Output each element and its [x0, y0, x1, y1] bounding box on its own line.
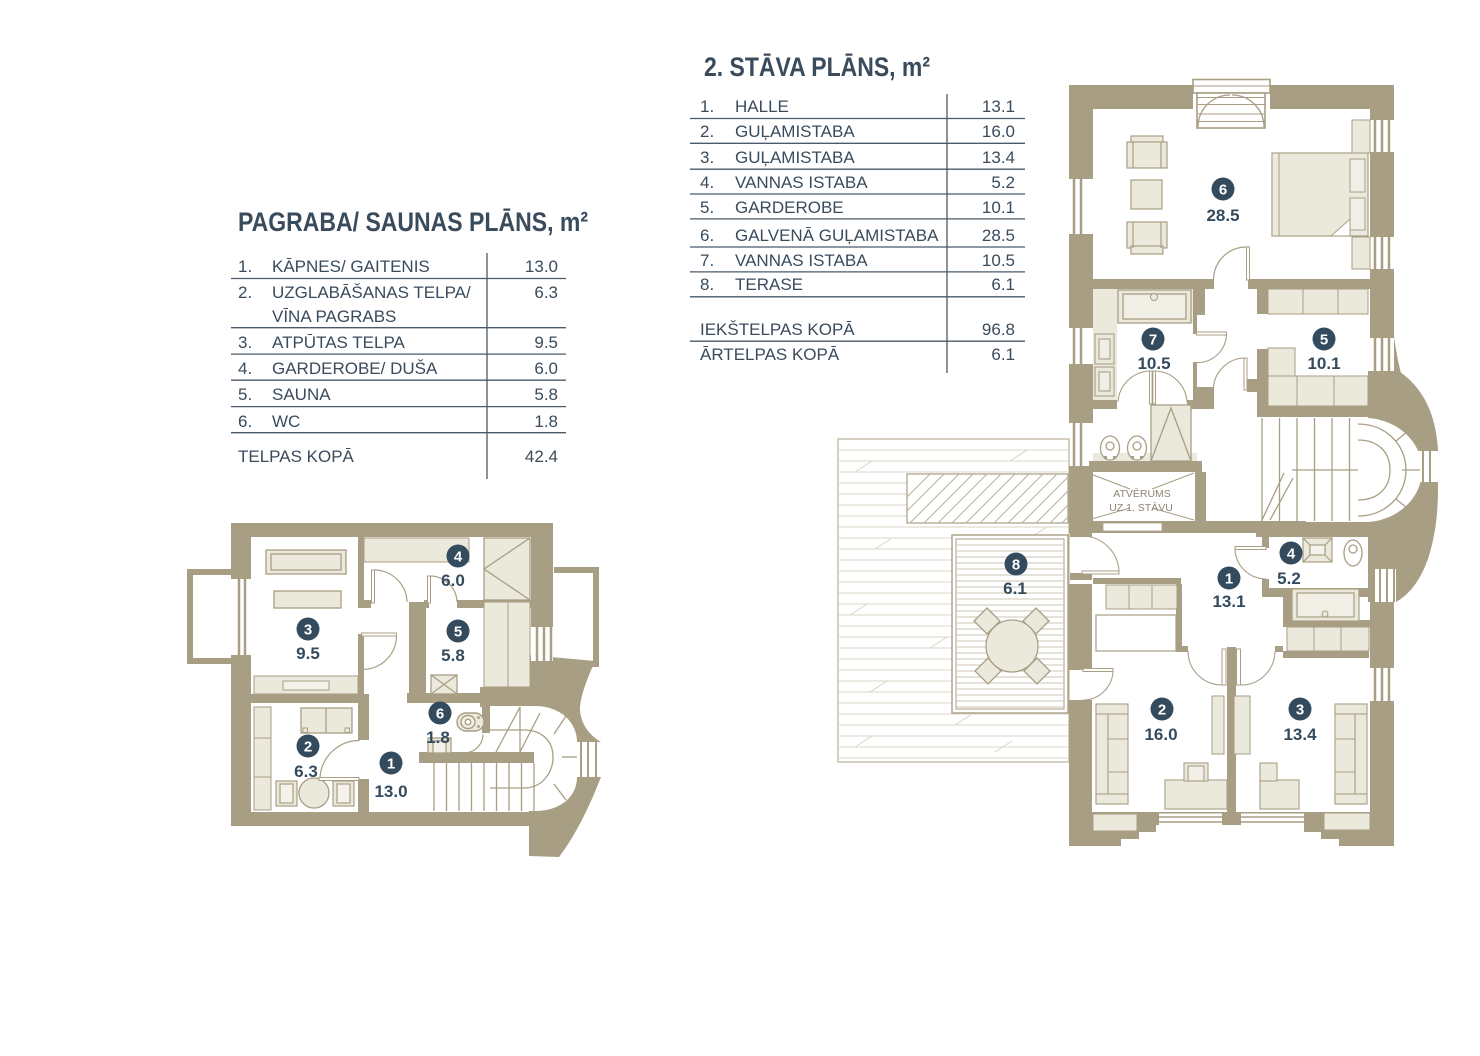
- svg-text:96.8: 96.8: [982, 320, 1015, 339]
- svg-text:3.: 3.: [700, 148, 714, 167]
- svg-text:13.1: 13.1: [982, 97, 1015, 116]
- svg-text:1.: 1.: [238, 257, 252, 276]
- svg-text:6.: 6.: [238, 412, 252, 431]
- svg-text:GARDEROBE: GARDEROBE: [735, 198, 844, 217]
- svg-text:16.0: 16.0: [1144, 725, 1177, 744]
- svg-text:1.8: 1.8: [534, 412, 558, 431]
- svg-text:13.0: 13.0: [374, 782, 407, 801]
- svg-text:ATVĒRUMS: ATVĒRUMS: [1113, 488, 1171, 500]
- svg-text:UZ 1. STĀVU: UZ 1. STĀVU: [1109, 502, 1173, 514]
- svg-text:2: 2: [304, 739, 312, 756]
- svg-text:3: 3: [304, 622, 312, 639]
- svg-text:2.: 2.: [700, 122, 714, 141]
- svg-text:5: 5: [1320, 332, 1328, 349]
- svg-text:VĪNA PAGRABS: VĪNA PAGRABS: [272, 307, 396, 326]
- svg-text:10.5: 10.5: [1137, 354, 1170, 373]
- svg-text:1: 1: [1225, 571, 1233, 588]
- svg-text:16.0: 16.0: [982, 122, 1015, 141]
- svg-text:10.5: 10.5: [982, 251, 1015, 270]
- svg-text:IEKŠTELPAS KOPĀ: IEKŠTELPAS KOPĀ: [700, 320, 855, 339]
- svg-text:5.2: 5.2: [1277, 569, 1301, 588]
- svg-text:5.8: 5.8: [441, 646, 465, 665]
- svg-text:2. STĀVA PLĀNS, m²: 2. STĀVA PLĀNS, m²: [704, 52, 930, 82]
- svg-text:3: 3: [1296, 702, 1304, 719]
- svg-text:7.: 7.: [700, 251, 714, 270]
- svg-text:PAGRABA/ SAUNAS PLĀNS, m²: PAGRABA/ SAUNAS PLĀNS, m²: [238, 207, 588, 237]
- svg-text:10.1: 10.1: [1307, 354, 1340, 373]
- svg-text:5.2: 5.2: [991, 173, 1015, 192]
- svg-text:4.: 4.: [700, 173, 714, 192]
- svg-text:WC: WC: [272, 412, 300, 431]
- svg-text:KĀPNES/ GAITENIS: KĀPNES/ GAITENIS: [272, 257, 430, 276]
- svg-text:GUĻAMISTABA: GUĻAMISTABA: [735, 148, 855, 167]
- svg-text:9.5: 9.5: [296, 644, 320, 663]
- svg-text:28.5: 28.5: [982, 226, 1015, 245]
- svg-text:13.4: 13.4: [1283, 725, 1317, 744]
- svg-text:13.1: 13.1: [1212, 592, 1245, 611]
- svg-text:GUĻAMISTABA: GUĻAMISTABA: [735, 122, 855, 141]
- svg-text:6.3: 6.3: [294, 762, 318, 781]
- svg-text:10.1: 10.1: [982, 198, 1015, 217]
- svg-text:UZGLABĀŠANAS TELPA/: UZGLABĀŠANAS TELPA/: [272, 283, 471, 302]
- svg-text:GALVENĀ GUĻAMISTABA: GALVENĀ GUĻAMISTABA: [735, 226, 939, 245]
- svg-text:1.: 1.: [700, 97, 714, 116]
- svg-text:6.: 6.: [700, 226, 714, 245]
- svg-text:GARDEROBE/ DUŠA: GARDEROBE/ DUŠA: [272, 359, 438, 378]
- svg-text:7: 7: [1149, 332, 1157, 349]
- svg-text:5.8: 5.8: [534, 385, 558, 404]
- svg-text:9.5: 9.5: [534, 333, 558, 352]
- svg-text:1.8: 1.8: [426, 728, 450, 747]
- svg-text:TELPAS KOPĀ: TELPAS KOPĀ: [238, 447, 355, 466]
- svg-text:8.: 8.: [700, 275, 714, 294]
- svg-text:2: 2: [1158, 702, 1166, 719]
- svg-text:6: 6: [1219, 182, 1227, 199]
- svg-text:VANNAS ISTABA: VANNAS ISTABA: [735, 173, 868, 192]
- svg-text:6.0: 6.0: [534, 359, 558, 378]
- svg-text:13.0: 13.0: [525, 257, 558, 276]
- svg-text:5.: 5.: [700, 198, 714, 217]
- svg-text:8: 8: [1012, 557, 1020, 574]
- svg-text:5: 5: [454, 624, 462, 641]
- svg-text:13.4: 13.4: [982, 148, 1015, 167]
- svg-text:6.1: 6.1: [991, 275, 1015, 294]
- svg-text:6.1: 6.1: [1003, 579, 1027, 598]
- svg-text:VANNAS ISTABA: VANNAS ISTABA: [735, 251, 868, 270]
- svg-text:ATPŪTAS TELPA: ATPŪTAS TELPA: [272, 333, 406, 352]
- svg-text:TERASE: TERASE: [735, 275, 803, 294]
- svg-text:6: 6: [436, 706, 444, 723]
- svg-text:42.4: 42.4: [525, 447, 558, 466]
- svg-text:28.5: 28.5: [1206, 206, 1239, 225]
- svg-text:2.: 2.: [238, 283, 252, 302]
- svg-text:6.3: 6.3: [534, 283, 558, 302]
- svg-text:HALLE: HALLE: [735, 97, 789, 116]
- svg-text:4: 4: [454, 549, 463, 566]
- svg-text:SAUNA: SAUNA: [272, 385, 331, 404]
- svg-text:6.0: 6.0: [441, 571, 465, 590]
- svg-text:5.: 5.: [238, 385, 252, 404]
- svg-text:4.: 4.: [238, 359, 252, 378]
- svg-text:3.: 3.: [238, 333, 252, 352]
- svg-text:6.1: 6.1: [991, 345, 1015, 364]
- svg-text:4: 4: [1287, 546, 1296, 563]
- svg-text:1: 1: [387, 756, 395, 773]
- svg-text:ĀRTELPAS KOPĀ: ĀRTELPAS KOPĀ: [700, 345, 840, 364]
